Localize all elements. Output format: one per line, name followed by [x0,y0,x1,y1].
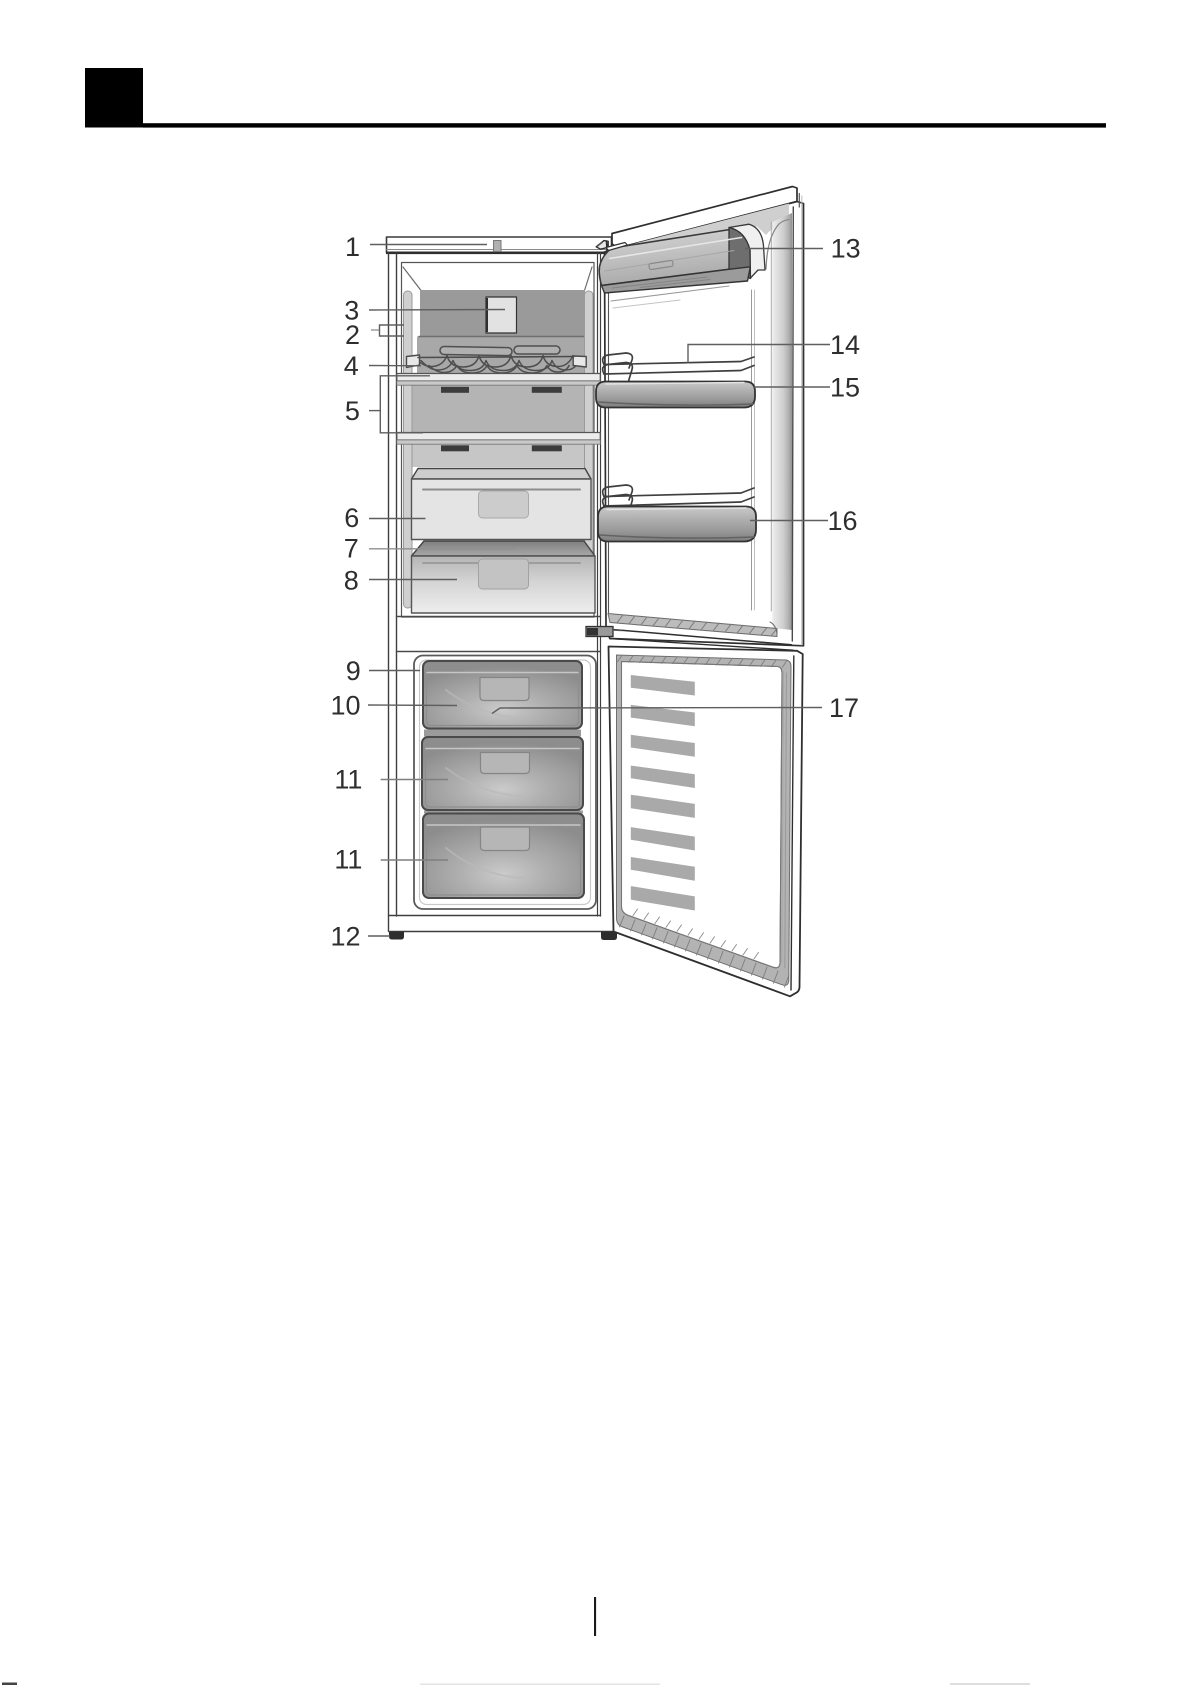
svg-text:12: 12 [330,922,360,952]
svg-text:10: 10 [330,691,360,721]
svg-text:15: 15 [830,373,860,403]
svg-text:17: 17 [829,693,859,723]
svg-text:2: 2 [345,320,360,350]
svg-text:11: 11 [334,844,362,874]
svg-text:8: 8 [344,565,359,595]
svg-text:13: 13 [831,233,861,263]
svg-text:7: 7 [344,533,359,563]
svg-text:6: 6 [344,503,359,533]
svg-text:11: 11 [334,765,362,795]
svg-text:16: 16 [827,506,857,536]
svg-text:1: 1 [345,232,360,262]
svg-text:5: 5 [345,396,360,426]
svg-text:9: 9 [346,656,361,686]
svg-text:14: 14 [830,330,860,360]
svg-text:4: 4 [344,351,359,381]
